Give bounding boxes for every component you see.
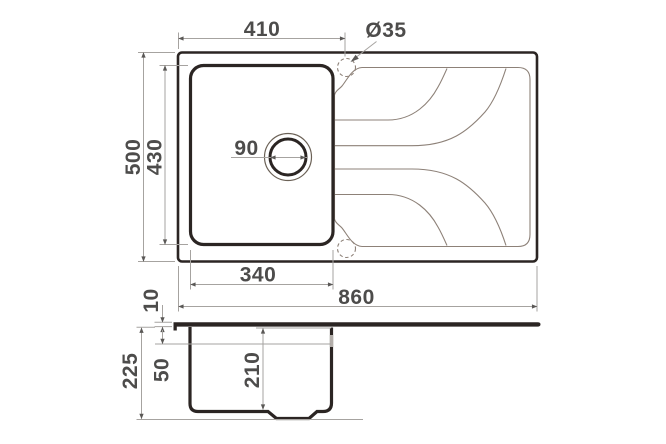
faucet-hole-bottom — [338, 240, 356, 258]
rim-profile — [174, 322, 541, 330]
dim-bowl-inner-height: 210 — [241, 328, 331, 410]
drainboard-groove-2 — [335, 69, 507, 146]
dim-drain-dia-label: 90 — [234, 137, 258, 160]
dim-bowl-width-label: 340 — [240, 264, 277, 287]
dim-outer-depth-label: 500 — [122, 139, 145, 176]
drawing-canvas: 410 Ø35 500 430 90 3 — [0, 0, 666, 444]
drainboard-outline — [335, 68, 531, 247]
faucet-hole-top — [338, 59, 356, 77]
dim-outer-width: 860 — [179, 266, 538, 312]
drainboard-groove-1 — [335, 69, 448, 121]
dim-faucet-hole-label: Ø35 — [365, 19, 406, 42]
dim-bowl-inner-height-label: 210 — [241, 352, 264, 389]
side-view: 10 50 225 210 — [119, 288, 541, 419]
dim-total-height-label: 225 — [119, 353, 142, 390]
dim-bowl-depth-plan-label: 430 — [144, 139, 167, 176]
dim-rim-thickness: 10 — [140, 288, 172, 336]
top-view: 410 Ø35 500 430 90 3 — [122, 18, 537, 312]
dim-faucet-offset-label: 410 — [244, 18, 281, 41]
dim-bowl-width: 340 — [191, 250, 334, 290]
dim-outer-width-label: 860 — [338, 286, 375, 309]
dim-faucet-offset: 410 — [179, 18, 346, 57]
dim-rim-thickness-label: 10 — [140, 288, 163, 312]
drainboard-groove-4 — [335, 195, 448, 246]
sink-technical-drawing: 410 Ø35 500 430 90 3 — [0, 0, 666, 444]
dim-faucet-hole: Ø35 — [351, 19, 407, 62]
drainboard-groove-3 — [335, 169, 507, 246]
dim-bowl-depth-plan: 430 — [144, 66, 189, 245]
dim-rim-to-overflow-label: 50 — [151, 358, 174, 382]
